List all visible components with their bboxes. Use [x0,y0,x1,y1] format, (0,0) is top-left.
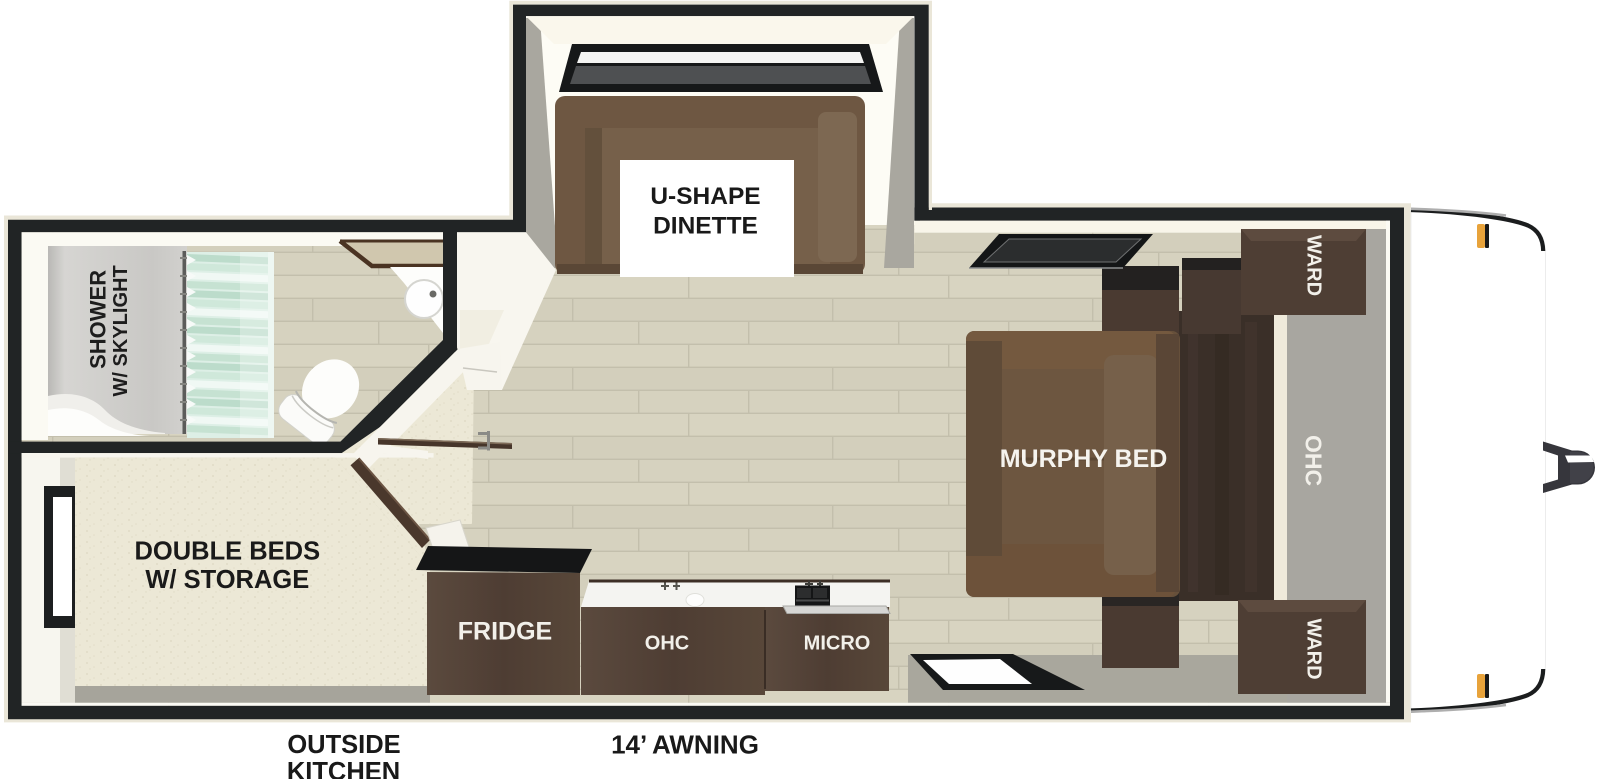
svg-text:W/ STORAGE: W/ STORAGE [145,566,309,594]
svg-text:MICRO: MICRO [804,633,871,655]
svg-text:14’ AWNING: 14’ AWNING [611,730,759,760]
svg-text:FRIDGE: FRIDGE [458,618,552,646]
svg-text:OHC: OHC [1301,435,1327,486]
svg-text:MURPHY BED: MURPHY BED [1000,445,1168,473]
svg-text:KITCHEN: KITCHEN [287,758,400,779]
svg-text:WARD: WARD [1303,235,1325,296]
svg-text:DOUBLE BEDS: DOUBLE BEDS [134,538,320,566]
svg-text:WARD: WARD [1303,618,1325,679]
svg-text:U-SHAPE: U-SHAPE [650,183,760,210]
svg-text:DINETTE: DINETTE [653,213,758,240]
svg-text:W/ SKYLIGHT: W/ SKYLIGHT [110,265,132,396]
svg-text:OUTSIDE: OUTSIDE [287,731,400,759]
svg-text:SHOWER: SHOWER [86,270,111,369]
svg-text:OHC: OHC [645,633,689,655]
